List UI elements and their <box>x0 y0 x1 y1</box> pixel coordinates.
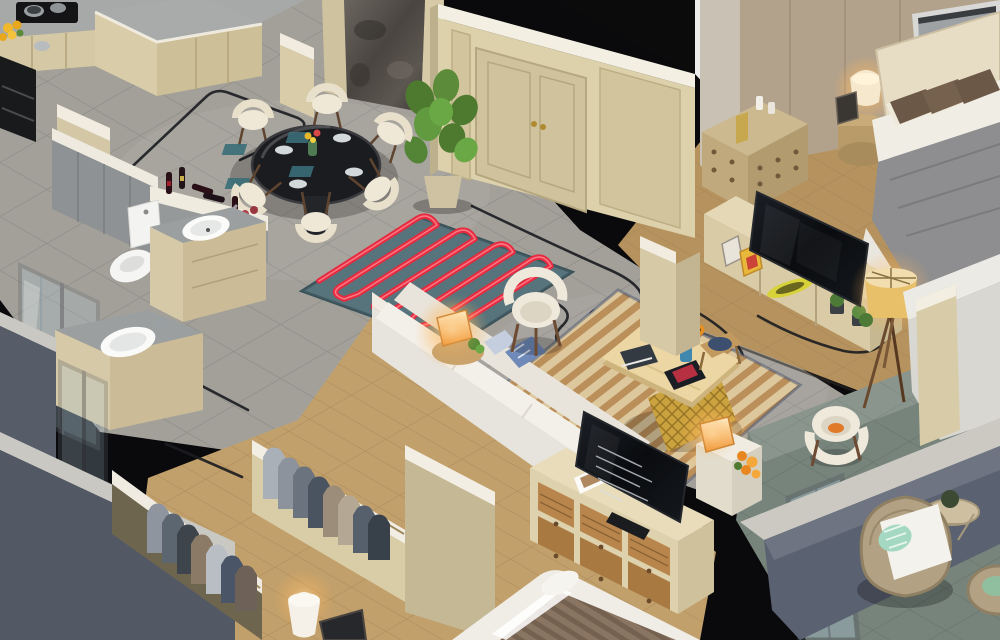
planter <box>424 176 462 208</box>
apartment-render <box>0 0 1000 640</box>
red-cup <box>250 206 258 214</box>
render-canvas <box>0 0 1000 640</box>
candle <box>768 102 775 114</box>
cooking-pot <box>50 3 66 13</box>
glass-dining-table <box>252 126 380 204</box>
rattan-armchair <box>857 497 953 608</box>
wall-panel <box>600 68 680 228</box>
door-handle <box>540 124 546 130</box>
navy-cushion <box>708 337 732 351</box>
candle <box>756 96 763 110</box>
door-handle <box>531 121 537 127</box>
range-hood-oven <box>0 56 36 142</box>
vanity <box>150 206 266 322</box>
orange-pillow <box>828 423 844 433</box>
pillar-side <box>676 252 700 356</box>
pot-on-counter <box>34 41 50 51</box>
dark-plant <box>941 490 959 508</box>
photo-frames <box>836 92 858 124</box>
small-plant <box>859 313 873 327</box>
standing-book <box>736 112 748 144</box>
pillar-face <box>640 248 676 356</box>
